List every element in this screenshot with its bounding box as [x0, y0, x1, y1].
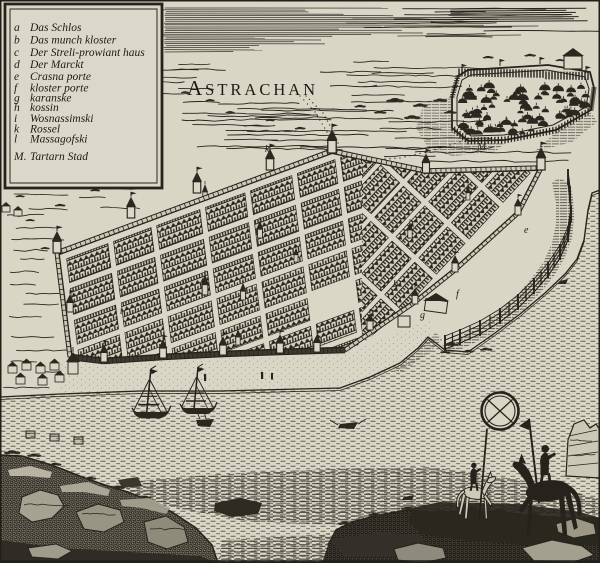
svg-text:a: a	[14, 22, 20, 34]
svg-text:Der Streli-prowiant haus: Der Streli-prowiant haus	[29, 47, 145, 59]
svg-text:k: k	[265, 144, 270, 155]
svg-text:e: e	[524, 225, 529, 236]
svg-text:Das munch kloster: Das munch kloster	[29, 35, 117, 47]
svg-text:c: c	[14, 47, 19, 59]
svg-text:Tartarn Stad: Tartarn Stad	[30, 151, 88, 163]
svg-text:l: l	[14, 134, 17, 146]
svg-text:M.: M.	[13, 151, 26, 163]
svg-text:b: b	[14, 35, 20, 47]
svg-text:t: t	[120, 306, 123, 317]
svg-text:ASTRACHAN: ASTRACHAN	[187, 76, 318, 100]
svg-text:b: b	[393, 279, 398, 290]
svg-text:c: c	[410, 176, 415, 187]
svg-text:Crasna porte: Crasna porte	[30, 71, 91, 83]
svg-text:g: g	[420, 310, 425, 321]
svg-text:Massagofski: Massagofski	[29, 134, 88, 146]
svg-text:Das Schlos: Das Schlos	[29, 22, 82, 34]
svg-text:d: d	[14, 59, 20, 71]
svg-text:e: e	[14, 71, 19, 83]
svg-text:Der Marckt: Der Marckt	[29, 59, 84, 71]
